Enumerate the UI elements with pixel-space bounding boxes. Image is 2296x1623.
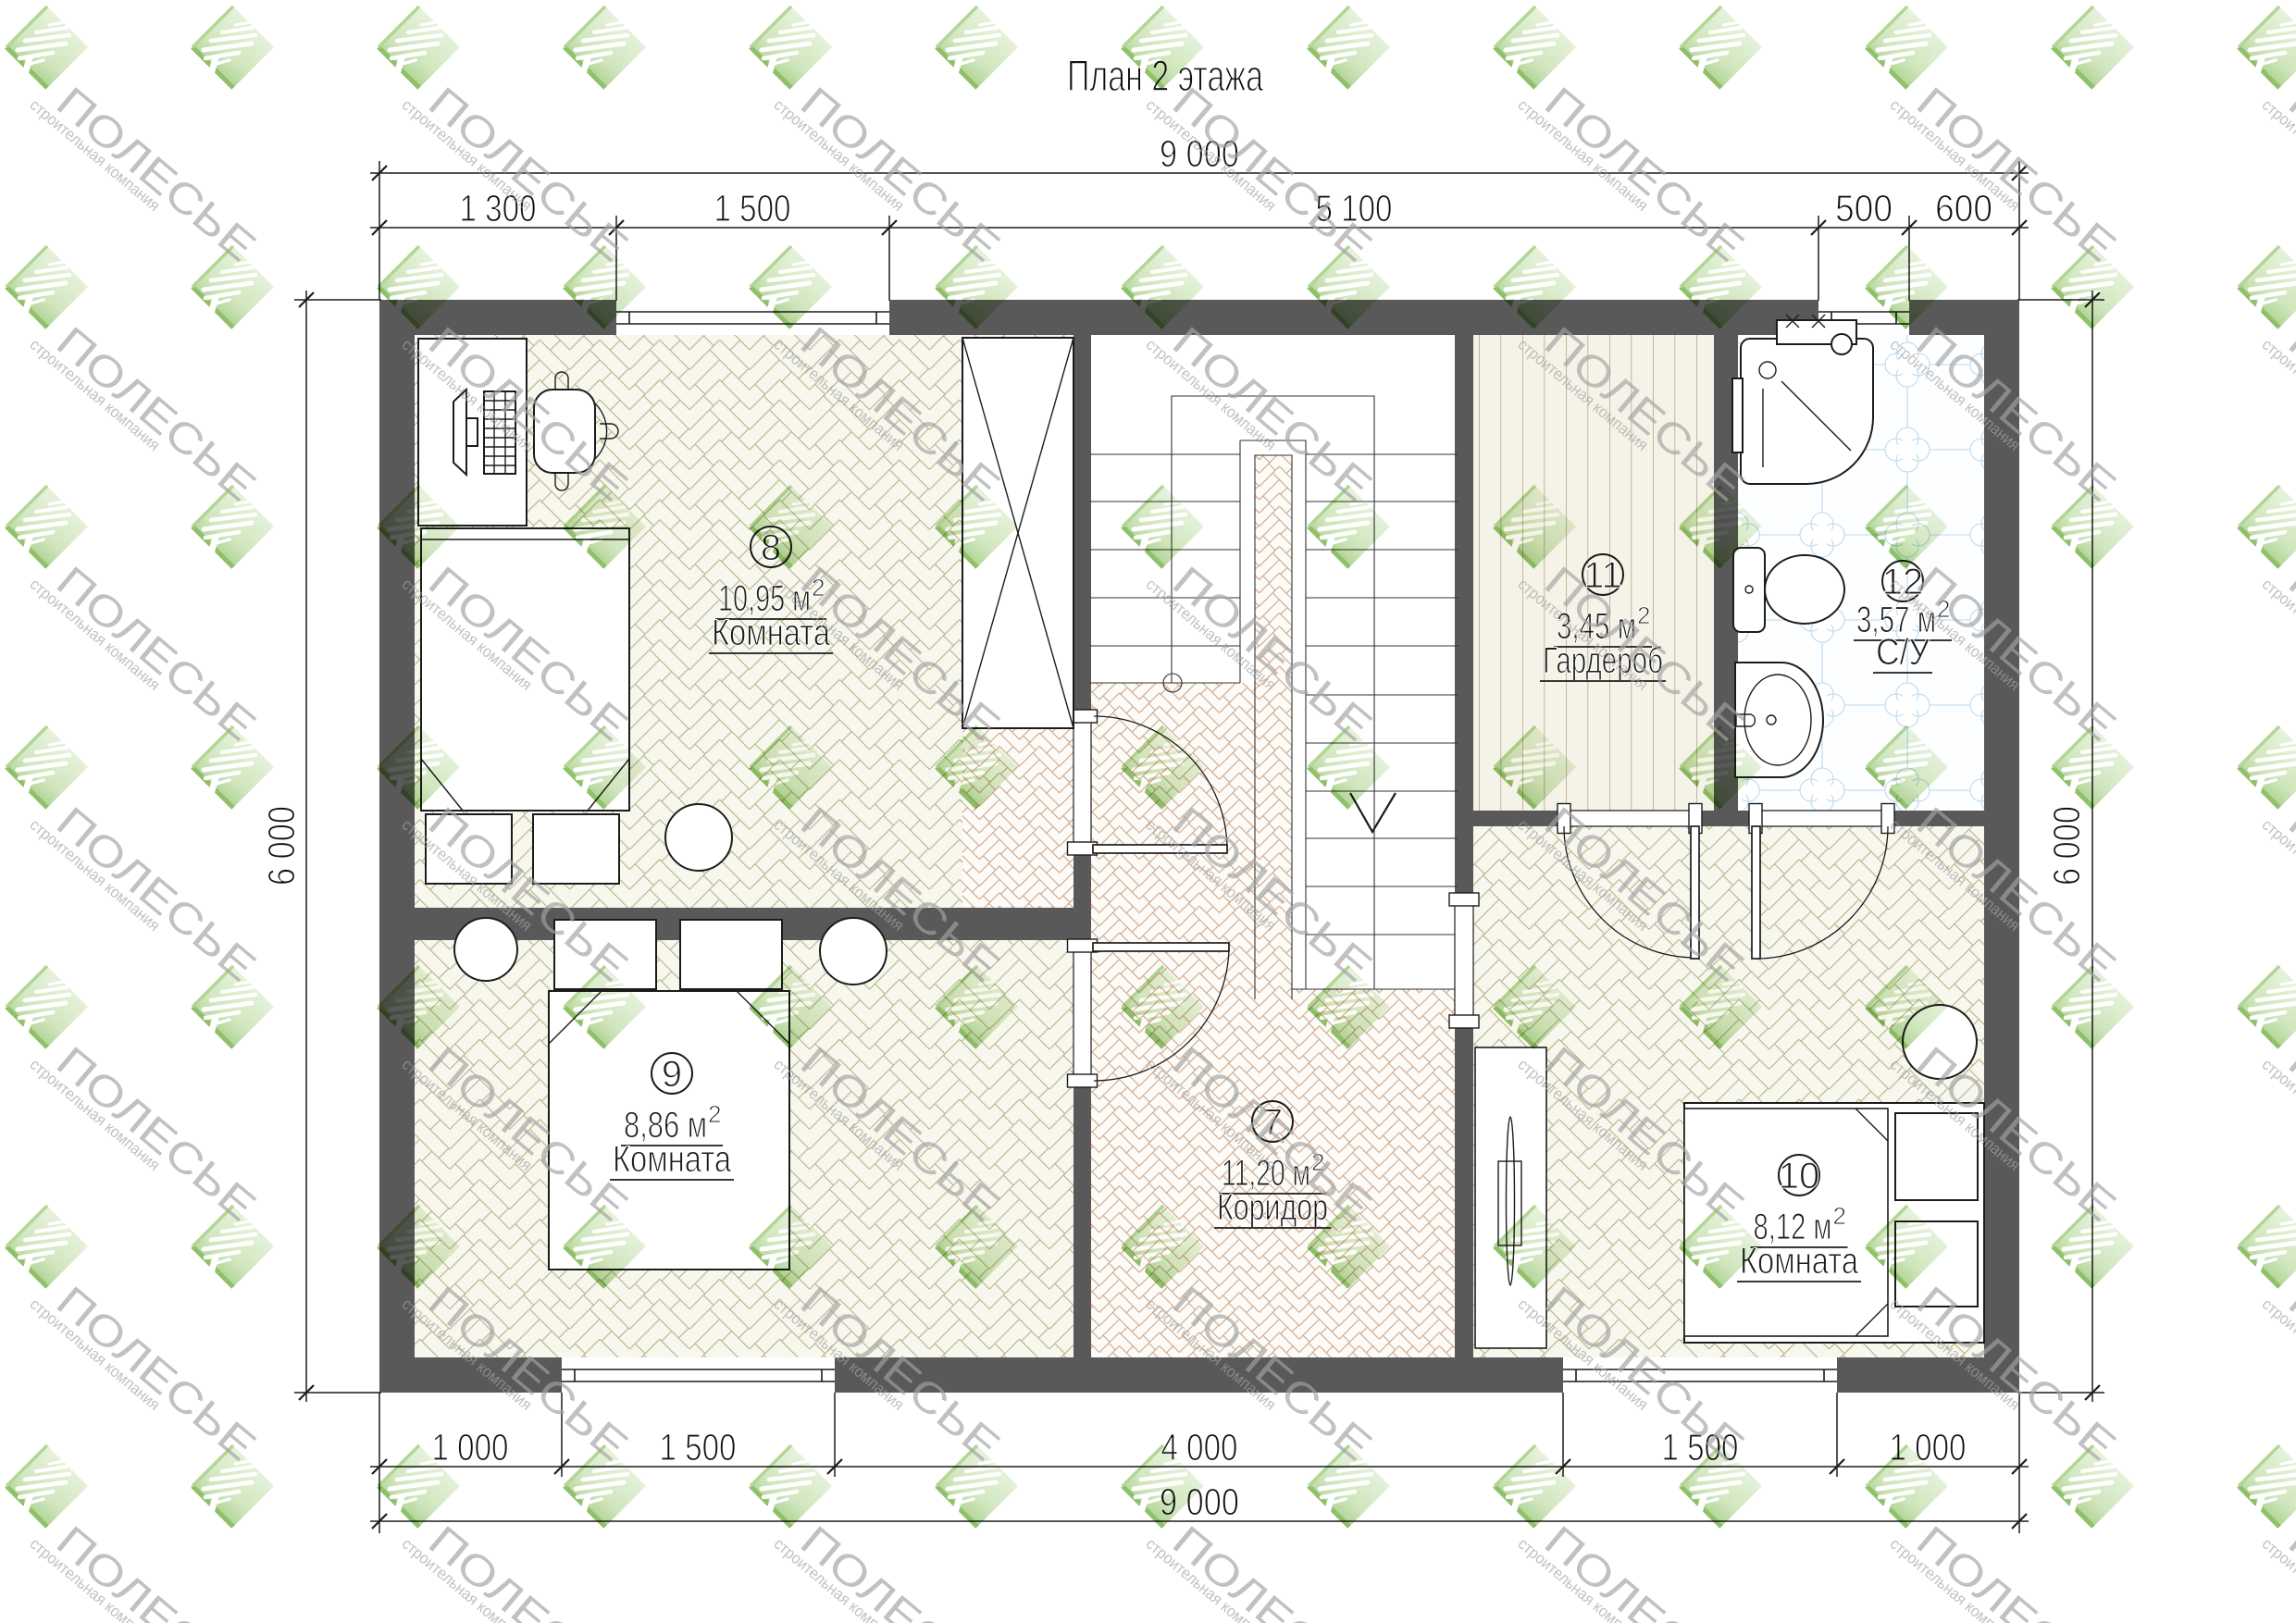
svg-text:10: 10 <box>1779 1156 1820 1196</box>
svg-text:Комната: Комната <box>613 1139 732 1180</box>
svg-text:1 000: 1 000 <box>432 1426 509 1468</box>
svg-text:600: 600 <box>1935 187 1992 229</box>
svg-text:1 500: 1 500 <box>660 1426 737 1468</box>
svg-text:9: 9 <box>662 1054 682 1095</box>
svg-text:500: 500 <box>1835 187 1893 229</box>
svg-text:2: 2 <box>1833 1202 1846 1230</box>
svg-text:2: 2 <box>708 1100 721 1128</box>
svg-text:С/У: С/У <box>1876 632 1930 673</box>
svg-text:6 000: 6 000 <box>260 806 303 886</box>
svg-text:1 500: 1 500 <box>714 187 791 229</box>
svg-text:6 000: 6 000 <box>2045 806 2088 886</box>
